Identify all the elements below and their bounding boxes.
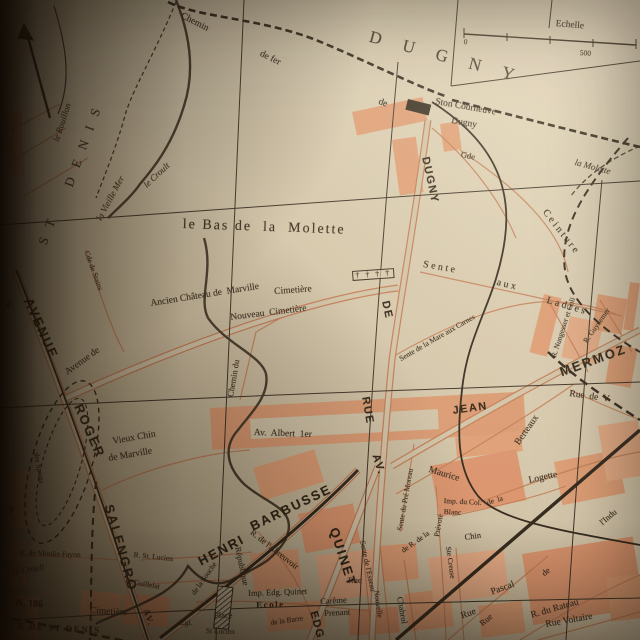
street-label-moulin-fayon: R. du Moulin Fayon bbox=[20, 549, 81, 559]
label-des-sports: des Sports bbox=[33, 452, 46, 484]
street-label-ste-creuse: Ste Creuse bbox=[445, 546, 457, 579]
street-label-logette: Logette bbox=[528, 471, 558, 486]
street-label-industrie: l'Indu bbox=[598, 507, 618, 526]
street-label-av-barbusse: AV. bbox=[141, 608, 155, 627]
railway-label-de: de bbox=[377, 98, 389, 110]
scale-500: 500 bbox=[579, 49, 591, 57]
street-label-rue-de-v: Rue de V bbox=[569, 390, 610, 405]
street-label-berteaux: Berteaux bbox=[514, 414, 541, 448]
label-cimetiere-sud: Cimetière bbox=[90, 607, 128, 618]
street-label-cde-de-stains: Cde de Stains bbox=[83, 250, 104, 291]
street-label-rue-vertical: RUE bbox=[359, 396, 375, 425]
street-label-jean: JEAN bbox=[452, 401, 489, 417]
street-label-ancien-chateau: Ancien Château de Marville bbox=[150, 283, 260, 310]
street-label-av-quinet: AV. bbox=[370, 453, 387, 476]
commune-label-dugny: DUGNY bbox=[368, 28, 538, 89]
street-label-avenue-de: Avenue de bbox=[64, 346, 102, 377]
label-nouveau-cimetiere: Nouveau Cimetière bbox=[230, 305, 307, 324]
stream-label-le-rouillon: le Rouillon bbox=[52, 102, 73, 143]
street-label-industrie-de: de bbox=[540, 566, 552, 578]
street-label-avenue: AVENUE bbox=[22, 296, 60, 361]
street-label-rue-pascal-rue: Rue bbox=[460, 608, 478, 622]
scale-label: Echelle bbox=[555, 20, 584, 32]
street-label-careme: Carême bbox=[320, 596, 347, 606]
label-ecole: Ecole bbox=[256, 600, 285, 610]
street-label-vieux-chin: Vieux Chin bbox=[112, 430, 156, 447]
street-label-de-marville: de Marville bbox=[108, 447, 153, 464]
station-label-line1: Ston Courneuve bbox=[434, 98, 496, 118]
map-photo: Cheminde ferdeDUGNYEchelle0500Ston Courn… bbox=[0, 0, 640, 640]
street-label-industrie-rue: Rue bbox=[478, 612, 494, 627]
street-label-roger: ROGER bbox=[72, 402, 107, 460]
street-label-barbusse: BARBUSSE bbox=[248, 482, 334, 533]
cemetery-symbol: † † † † bbox=[352, 268, 395, 281]
street-label-abreuvoir: R. de l'Abreuvoir bbox=[249, 528, 301, 571]
street-label-chabrol: Chabrol bbox=[396, 596, 409, 624]
station-label-line2: Dugny bbox=[450, 117, 477, 131]
street-label-republique: République bbox=[234, 546, 250, 586]
grid-number-3: 3 bbox=[8, 506, 13, 516]
label-place: Place bbox=[214, 611, 232, 620]
railway-label-ceinture: Ceinture bbox=[540, 208, 581, 257]
street-label-blanc: Blanc bbox=[444, 508, 462, 516]
street-label-rue-nouvelle-rue: Rue bbox=[348, 576, 362, 585]
stream-label-la-molette: la Molette bbox=[574, 158, 612, 176]
stream-label-la-vieille-mer: la Vieille Mer bbox=[95, 174, 126, 222]
street-label-r-de-la: de R. de la bbox=[400, 530, 431, 555]
route-number-n186: N. 186 bbox=[16, 599, 44, 610]
railway-label-gde: Gde bbox=[460, 150, 476, 161]
street-label-imp-du-col: Imp. du Col. bbox=[444, 497, 482, 506]
commune-label-st: ST bbox=[36, 207, 61, 246]
street-label-pre-moreau: Sente du Pré Moreau bbox=[396, 468, 414, 531]
railway-label-chemin: Chemin bbox=[179, 12, 210, 34]
street-label-imp-edg-quinet: Imp. Edg. Quinet bbox=[248, 587, 307, 598]
grid-number-2: 2 bbox=[6, 300, 11, 310]
street-label-av-albert-1er: Av. Albert 1er bbox=[254, 429, 312, 441]
stream-label-le-croult-top: le Croult bbox=[142, 161, 171, 189]
place-label-bas-de-la-molette: le Bas de la Molette bbox=[183, 218, 346, 238]
street-label-chemin-du: Chemin du bbox=[226, 359, 241, 397]
street-label-aux: aux bbox=[496, 278, 520, 293]
street-label-pascal: Pascal bbox=[490, 581, 516, 598]
street-label-maurice: Maurice bbox=[427, 466, 460, 484]
street-label-nouvelle: Nouvelle bbox=[373, 590, 384, 618]
scale-zero: 0 bbox=[463, 38, 467, 46]
street-label-rue-de-st-denis: RUE DE ST DENIS bbox=[2, 621, 101, 635]
street-label-r-st-lucien: R. St. Lucien bbox=[133, 551, 173, 563]
street-label-de-vertical: DE bbox=[379, 300, 394, 320]
street-label-prenant: Prenant bbox=[324, 608, 350, 618]
street-label-mermoz: MERMOZ bbox=[558, 342, 628, 378]
street-label-mare-aux-carnes: Sente de la Mare aux Carnes bbox=[398, 313, 476, 363]
label-eglise: Égl. bbox=[180, 619, 192, 627]
stream-label-le-croult-bottom: le Croult bbox=[12, 562, 45, 576]
street-label-chin: Chin bbox=[464, 531, 482, 542]
label-st-lucien: St Lucien bbox=[206, 627, 235, 636]
label-cimetiere: Cimetière bbox=[274, 285, 312, 297]
street-label-prevote: Prévoté bbox=[433, 513, 444, 537]
railway-label-de-fer: de fer bbox=[258, 50, 282, 68]
street-label-de-la-barre: de la Barre bbox=[270, 614, 304, 626]
map-labels: Cheminde ferdeDUGNYEchelle0500Ston Courn… bbox=[0, 0, 640, 640]
street-label-sente: Sente bbox=[422, 260, 458, 276]
street-label-de-la-logette: de la bbox=[486, 495, 504, 507]
street-label-dugny-vertical: DUGNY bbox=[419, 156, 440, 204]
